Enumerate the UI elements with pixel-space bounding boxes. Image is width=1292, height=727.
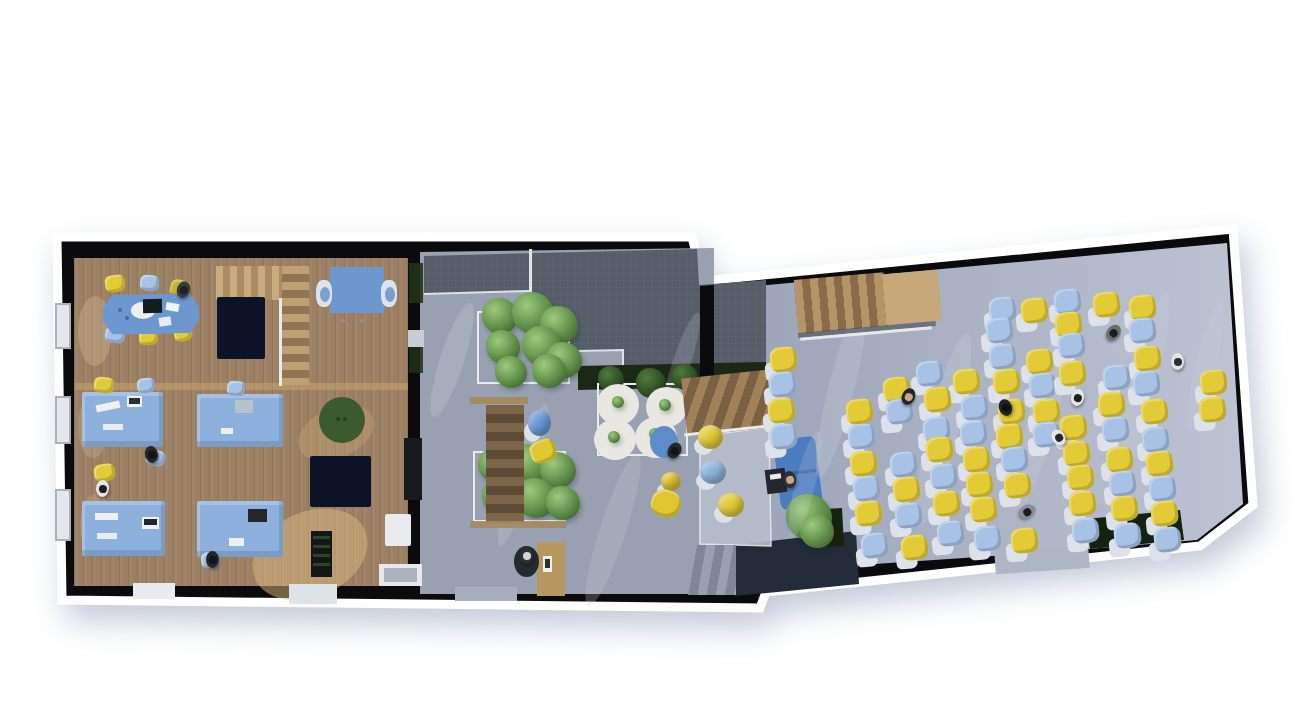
chair-yellow (1003, 472, 1032, 500)
chair-blue (915, 360, 944, 388)
pouf-blue (700, 460, 726, 484)
staircase (216, 266, 284, 300)
person (206, 551, 219, 568)
chair-blue (852, 475, 881, 503)
person-head (669, 445, 680, 456)
floor-dot (341, 319, 345, 322)
chair-yellow (769, 346, 798, 374)
chair-yellow (1199, 369, 1228, 397)
table-plant (659, 399, 671, 411)
chair-yellow (849, 450, 878, 478)
person-head (1022, 506, 1033, 517)
chair-yellow (923, 386, 952, 414)
person-head (523, 552, 531, 560)
person (1171, 353, 1184, 370)
side-table (330, 267, 384, 313)
chair-blue (1101, 416, 1130, 444)
chair-blue (894, 502, 923, 530)
chair-yellow (1025, 348, 1054, 376)
chair-yellow (932, 490, 961, 518)
cabinet (385, 514, 411, 546)
chair-blue (1113, 522, 1142, 550)
chair-yellow (962, 446, 991, 474)
chair-blue (847, 423, 876, 451)
plant (495, 356, 527, 388)
tv-screen-inner (384, 568, 417, 582)
table-dot (118, 308, 122, 312)
desk-paper (221, 428, 233, 434)
stair-landing (882, 270, 942, 326)
chair-yellow (767, 397, 796, 425)
chair-blue (769, 423, 798, 451)
wall-line (529, 249, 532, 293)
paper (158, 316, 171, 327)
person-head (147, 450, 157, 460)
chair-yellow (1133, 345, 1162, 373)
rug-dot (336, 417, 340, 421)
chair-yellow (992, 368, 1021, 396)
rug-navy (217, 297, 265, 359)
chair-yellow (1062, 440, 1091, 468)
chair-yellow (1198, 396, 1227, 424)
chair-yellow (1105, 446, 1134, 474)
chair-blue (988, 343, 1017, 371)
chair-blue (139, 274, 159, 291)
person-head (98, 484, 107, 493)
work-desk (82, 392, 163, 447)
chair-yellow (965, 471, 994, 499)
desk-paper (97, 533, 117, 539)
chair-blue (1102, 364, 1131, 392)
books (313, 545, 330, 548)
plant (532, 354, 566, 388)
chair-blue (1057, 332, 1086, 360)
plant (546, 486, 580, 520)
table-dot (125, 316, 129, 320)
chair-blue (768, 371, 797, 399)
chair-yellow (854, 500, 883, 528)
window (55, 489, 71, 541)
window (55, 396, 71, 444)
books (313, 554, 330, 557)
desk-monitor (235, 400, 253, 413)
rug-green (319, 397, 365, 443)
rug-navy (310, 456, 371, 507)
floorplan-canvas (0, 0, 1292, 727)
person-head (785, 475, 794, 484)
chair-blue (960, 394, 989, 422)
chair-yellow (1092, 291, 1121, 319)
person-head (1073, 393, 1083, 403)
person-head (1000, 402, 1010, 412)
chair-yellow (900, 534, 929, 562)
wood-border (470, 521, 566, 528)
chair-blue (973, 525, 1002, 553)
chair-yellow (969, 496, 998, 524)
wall-plant (409, 263, 423, 303)
stair-railing (279, 298, 282, 386)
chair-blue (1108, 470, 1137, 498)
chair-yellow (1097, 391, 1126, 419)
person-head (209, 556, 217, 564)
person-head (178, 284, 188, 294)
chair-blue (889, 451, 918, 479)
table-plant (608, 431, 620, 443)
chair-yellow (1058, 360, 1087, 388)
chair-seat (320, 287, 330, 302)
chair-blue (136, 377, 155, 394)
doorway (408, 330, 424, 347)
chair-yellow (845, 398, 874, 426)
pouf-blue (528, 410, 551, 436)
laptop-screen (129, 398, 140, 404)
door-step (289, 584, 337, 604)
door-step (133, 583, 175, 599)
chair-yellow (952, 368, 981, 396)
books (313, 536, 330, 539)
pouf-yellow (661, 472, 681, 491)
laptop (143, 299, 162, 313)
pouf-yellow (718, 493, 744, 517)
chair-blue (985, 317, 1014, 345)
desk-paper (229, 538, 244, 546)
chair-blue (1000, 446, 1029, 474)
chair-yellow (1140, 398, 1169, 426)
chair-yellow (892, 476, 921, 504)
wood-border (470, 397, 528, 404)
chair-yellow (1066, 464, 1095, 492)
chair-blue (936, 520, 965, 548)
chair-blue (860, 532, 889, 560)
door-step (455, 587, 517, 601)
chair-blue (959, 420, 988, 448)
person-head (1174, 358, 1182, 366)
chair-blue (1141, 426, 1170, 454)
floor-dot (360, 319, 364, 322)
wall-plant (409, 347, 423, 373)
chair-yellow (1068, 490, 1097, 518)
chair-yellow (1110, 495, 1139, 523)
stage-steps (688, 545, 736, 595)
shelf-unit (404, 438, 422, 500)
work-desk (197, 501, 283, 557)
chair-blue (226, 380, 245, 396)
chair-yellow (1145, 450, 1174, 478)
person-head (1053, 432, 1064, 443)
chair-blue (1028, 372, 1057, 400)
person-head (1108, 327, 1119, 338)
table-plant (612, 396, 624, 408)
chair-seat (385, 287, 395, 302)
window (55, 303, 71, 349)
person (520, 547, 533, 564)
tree (800, 514, 834, 548)
pouf-yellow (698, 425, 723, 449)
desk-paper (95, 513, 118, 520)
chair-yellow (1010, 527, 1039, 555)
books (313, 563, 330, 566)
person-head (903, 391, 914, 402)
laptop-screen (144, 519, 157, 525)
desk-paper (103, 424, 123, 430)
rug-dot (343, 417, 347, 421)
chair-blue (1071, 517, 1100, 545)
chair-blue (1148, 475, 1177, 503)
staircase (794, 272, 888, 334)
chair-yellow (93, 376, 115, 394)
laptop (248, 509, 267, 522)
staircase (282, 266, 309, 385)
laptop-screen (545, 559, 550, 568)
chair-blue (1128, 317, 1157, 345)
staircase (486, 405, 524, 523)
chair-yellow (1020, 297, 1049, 325)
chair-blue (929, 463, 958, 491)
chair-yellow (1150, 500, 1179, 528)
chair-yellow (925, 436, 954, 464)
chair-blue (1153, 526, 1182, 554)
chair-blue (1132, 370, 1161, 398)
